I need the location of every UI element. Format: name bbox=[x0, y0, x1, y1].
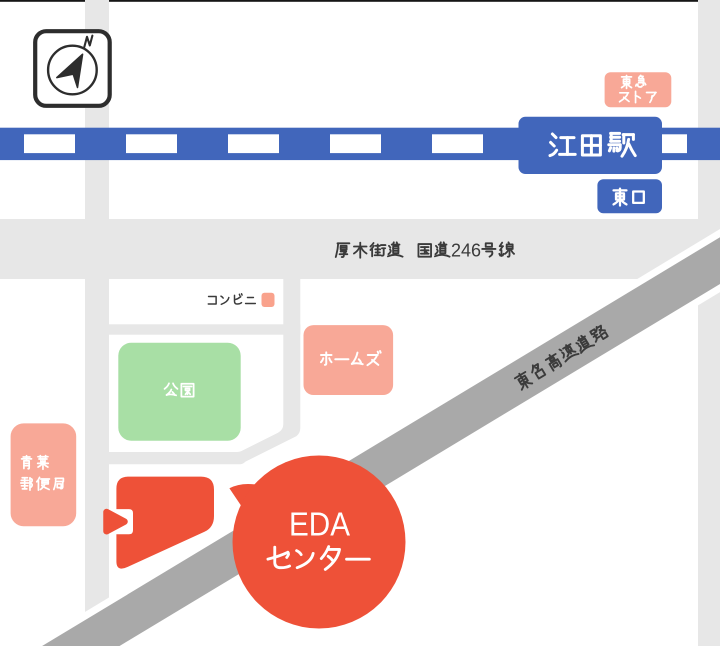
svg-text:EDA: EDA bbox=[289, 506, 350, 543]
svg-text:246: 246 bbox=[451, 241, 481, 261]
